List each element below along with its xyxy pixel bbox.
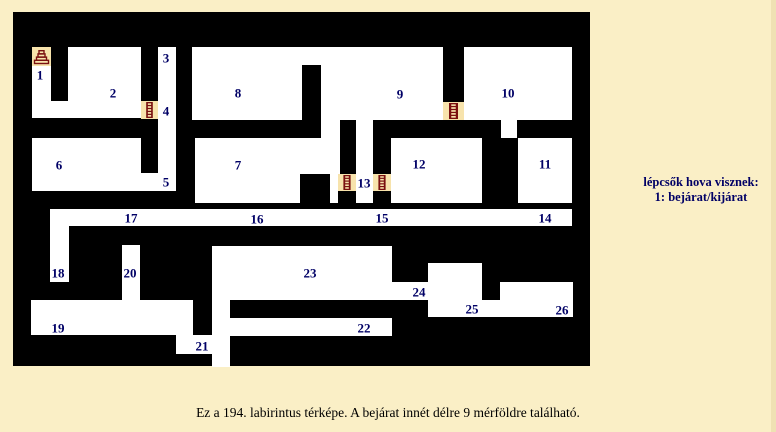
- room-number: 25: [466, 303, 479, 316]
- room-floor: [68, 47, 141, 102]
- stairs-icon: [32, 47, 51, 66]
- room-number: 16: [251, 213, 264, 226]
- ladder-icon: [443, 102, 464, 120]
- room-number: 7: [235, 159, 242, 172]
- room-number: 24: [413, 286, 426, 299]
- room-number: 14: [539, 212, 552, 225]
- room-number: 1: [37, 69, 44, 82]
- room-floor: [141, 173, 158, 191]
- room-floor: [212, 246, 392, 300]
- room-floor: [428, 300, 573, 317]
- room-number: 4: [163, 105, 170, 118]
- room-floor: [356, 120, 373, 138]
- room-number: 2: [110, 87, 117, 100]
- room-number: 19: [52, 322, 65, 335]
- room-floor: [195, 174, 300, 203]
- room-number: 9: [397, 88, 404, 101]
- room-floor: [195, 138, 340, 174]
- room-floor: [330, 174, 338, 203]
- room-number: 17: [125, 212, 138, 225]
- room-number: 13: [358, 177, 371, 190]
- legend-entry-1: 1: bejárat/kijárat: [606, 190, 776, 205]
- room-floor: [501, 120, 517, 138]
- legend-title: lépcsők hova visznek:: [606, 175, 776, 190]
- room-number: 8: [235, 87, 242, 100]
- page-edge-shade: [771, 0, 776, 432]
- ladder-icon: [141, 101, 158, 119]
- room-number: 11: [539, 158, 551, 171]
- room-floor: [391, 138, 482, 203]
- room-number: 6: [56, 159, 63, 172]
- ladder-icon: [373, 174, 391, 191]
- room-number: 26: [556, 304, 569, 317]
- stairs-legend: lépcsők hova visznek: 1: bejárat/kijárat: [606, 175, 776, 204]
- room-floor: [500, 282, 573, 300]
- room-number: 15: [376, 212, 389, 225]
- room-number: 3: [163, 52, 170, 65]
- room-number: 21: [196, 340, 209, 353]
- labyrinth-map: 1234567891011121314151617181920212223242…: [13, 12, 590, 366]
- page-background: 1234567891011121314151617181920212223242…: [0, 0, 776, 432]
- ladder-icon: [338, 174, 356, 191]
- room-floor: [192, 47, 572, 120]
- room-number: 5: [163, 176, 170, 189]
- room-number: 18: [52, 267, 65, 280]
- room-floor: [32, 101, 141, 118]
- wall-pillar: [443, 47, 464, 102]
- room-number: 23: [304, 267, 317, 280]
- room-floor: [32, 138, 141, 191]
- room-number: 22: [358, 322, 371, 335]
- map-caption: Ez a 194. labirintus térképe. A bejárat …: [0, 405, 776, 421]
- room-floor: [321, 120, 340, 138]
- wall-pillar: [302, 65, 321, 120]
- room-floor: [356, 138, 373, 203]
- room-number: 12: [413, 158, 426, 171]
- room-floor: [158, 47, 176, 191]
- room-number: 10: [502, 87, 515, 100]
- room-number: 20: [124, 267, 137, 280]
- room-floor: [428, 263, 482, 300]
